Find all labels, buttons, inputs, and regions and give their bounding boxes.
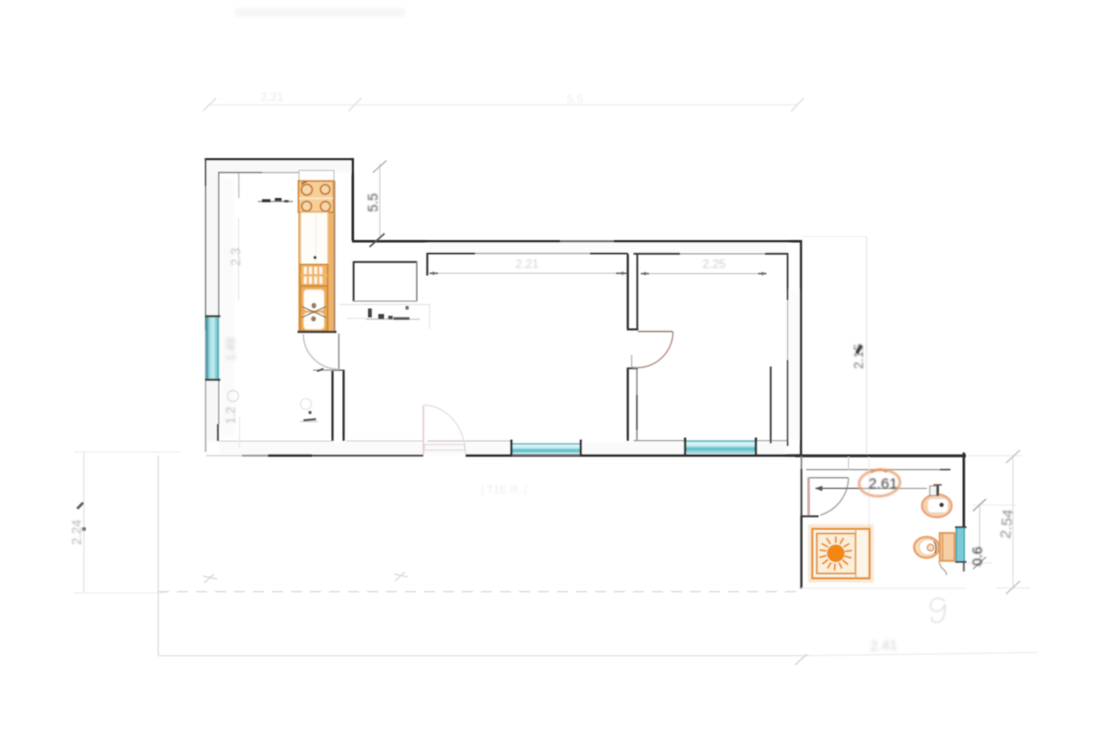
svg-text:| T1E.R..|: | T1E.R..| [481, 484, 527, 496]
svg-text:1.2: 1.2 [224, 407, 238, 424]
svg-text:2.41: 2.41 [870, 636, 898, 653]
svg-text:2.61: 2.61 [868, 476, 897, 493]
svg-text:2.54: 2.54 [997, 509, 1017, 540]
svg-text:5.5: 5.5 [567, 92, 584, 106]
svg-text:2.24: 2.24 [69, 520, 84, 545]
svg-text:5.5: 5.5 [366, 193, 381, 212]
svg-text:1.49: 1.49 [224, 337, 238, 361]
svg-text:2.25: 2.25 [702, 257, 726, 271]
svg-text:2.3: 2.3 [228, 248, 243, 266]
svg-text:2.21: 2.21 [260, 90, 284, 104]
svg-text:2.21: 2.21 [515, 257, 539, 271]
svg-text:0.6: 0.6 [969, 546, 985, 566]
